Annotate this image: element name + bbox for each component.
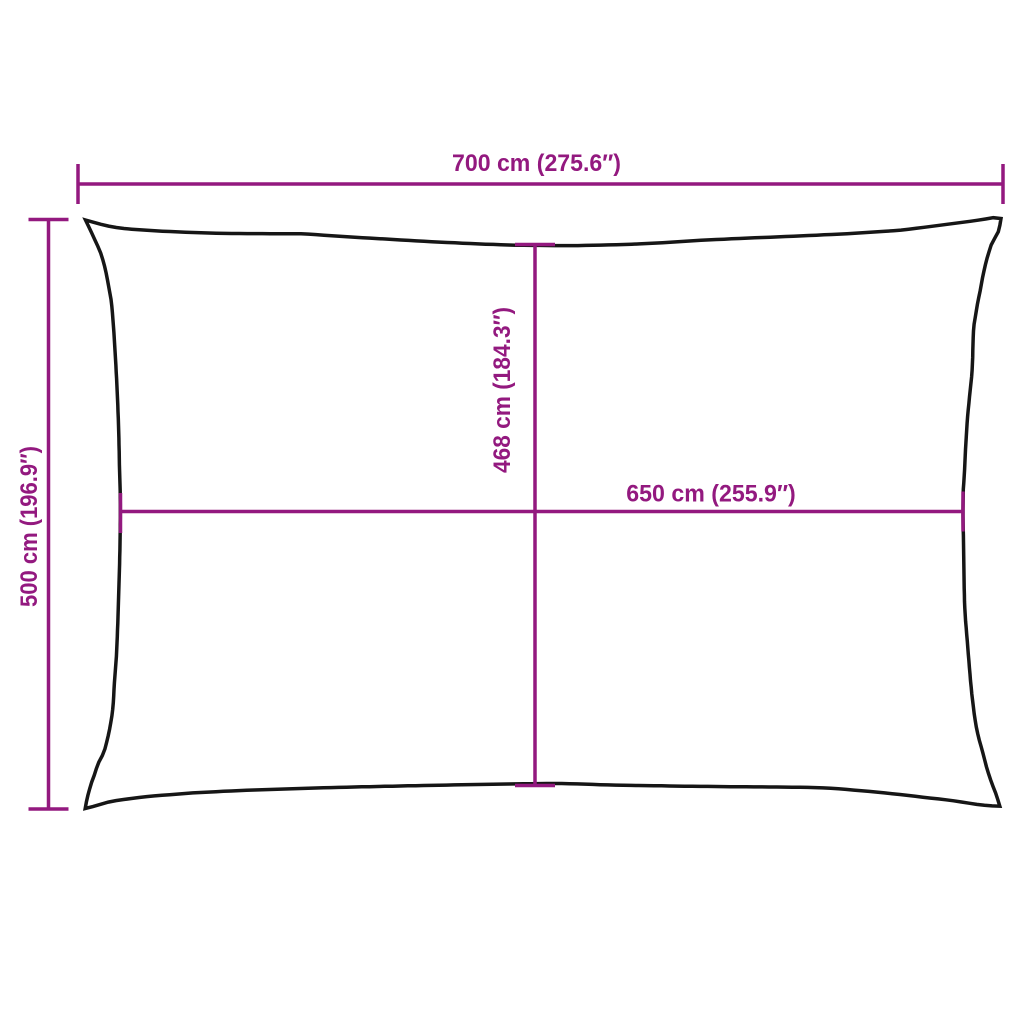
- svg-text:700 cm (275.6″): 700 cm (275.6″): [452, 150, 621, 177]
- svg-text:500 cm (196.9″): 500 cm (196.9″): [16, 446, 43, 607]
- svg-text:468 cm (184.3″): 468 cm (184.3″): [489, 307, 516, 473]
- svg-text:650 cm (255.9″): 650 cm (255.9″): [626, 481, 796, 508]
